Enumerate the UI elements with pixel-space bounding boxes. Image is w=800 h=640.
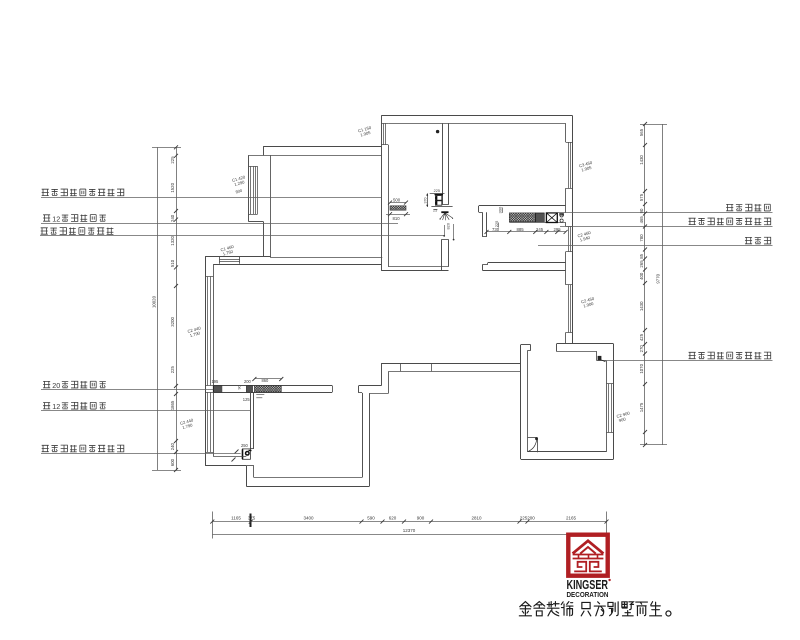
svg-text:1165: 1165: [231, 515, 241, 520]
svg-text:12: 12: [52, 402, 60, 411]
svg-text:3200: 3200: [170, 317, 175, 327]
svg-text:820: 820: [446, 222, 451, 229]
svg-text:10020: 10020: [152, 295, 157, 308]
svg-text:2165: 2165: [566, 515, 577, 520]
svg-text:85: 85: [639, 253, 644, 258]
svg-text:225: 225: [170, 156, 175, 164]
svg-text:225: 225: [170, 366, 175, 374]
svg-text:810: 810: [393, 216, 401, 221]
svg-text:885: 885: [517, 227, 525, 232]
svg-text:2810: 2810: [471, 515, 482, 520]
svg-text:90: 90: [639, 208, 644, 213]
svg-text:200: 200: [244, 379, 252, 384]
svg-text:1430: 1430: [639, 155, 644, 165]
svg-text:240: 240: [170, 443, 175, 451]
svg-text:225: 225: [494, 220, 499, 227]
svg-text:20: 20: [52, 381, 60, 390]
svg-text:12370: 12370: [403, 528, 416, 533]
svg-text:425: 425: [639, 333, 644, 341]
svg-text:780: 780: [639, 234, 644, 242]
svg-text:270: 270: [639, 345, 644, 353]
svg-text:575: 575: [639, 193, 644, 201]
svg-text:1865: 1865: [170, 400, 175, 410]
svg-text:25: 25: [433, 208, 437, 212]
svg-text:90: 90: [237, 386, 241, 390]
svg-text:DECORATION: DECORATION: [567, 590, 609, 599]
svg-text:245: 245: [536, 227, 544, 232]
svg-text:195: 195: [212, 379, 220, 384]
svg-text:500: 500: [393, 198, 401, 203]
svg-text:200: 200: [527, 515, 535, 520]
svg-text:375: 375: [248, 515, 256, 520]
svg-text:240: 240: [170, 214, 175, 222]
svg-text:300: 300: [498, 206, 503, 213]
svg-text:1520: 1520: [170, 182, 175, 192]
svg-text:9770: 9770: [656, 273, 661, 283]
svg-text:1475: 1475: [639, 402, 644, 412]
svg-text:1320: 1320: [170, 236, 175, 246]
svg-text:265: 265: [639, 260, 644, 268]
svg-text:620: 620: [389, 515, 397, 520]
svg-text:1430: 1430: [639, 301, 644, 311]
svg-text:900: 900: [417, 515, 425, 520]
svg-text:600: 600: [170, 458, 175, 466]
svg-text:295: 295: [554, 227, 562, 232]
svg-text:12: 12: [52, 214, 60, 223]
svg-text:125: 125: [243, 397, 251, 402]
svg-text:3400: 3400: [303, 515, 314, 520]
svg-text:465: 465: [639, 216, 644, 224]
svg-text:400: 400: [639, 272, 644, 280]
svg-text:250: 250: [241, 443, 249, 448]
svg-text:225: 225: [434, 189, 440, 193]
svg-text:565: 565: [639, 128, 644, 136]
svg-text:590: 590: [367, 515, 375, 520]
svg-text:370: 370: [423, 198, 427, 204]
svg-text:1070: 1070: [639, 363, 644, 373]
svg-text:510: 510: [170, 259, 175, 267]
